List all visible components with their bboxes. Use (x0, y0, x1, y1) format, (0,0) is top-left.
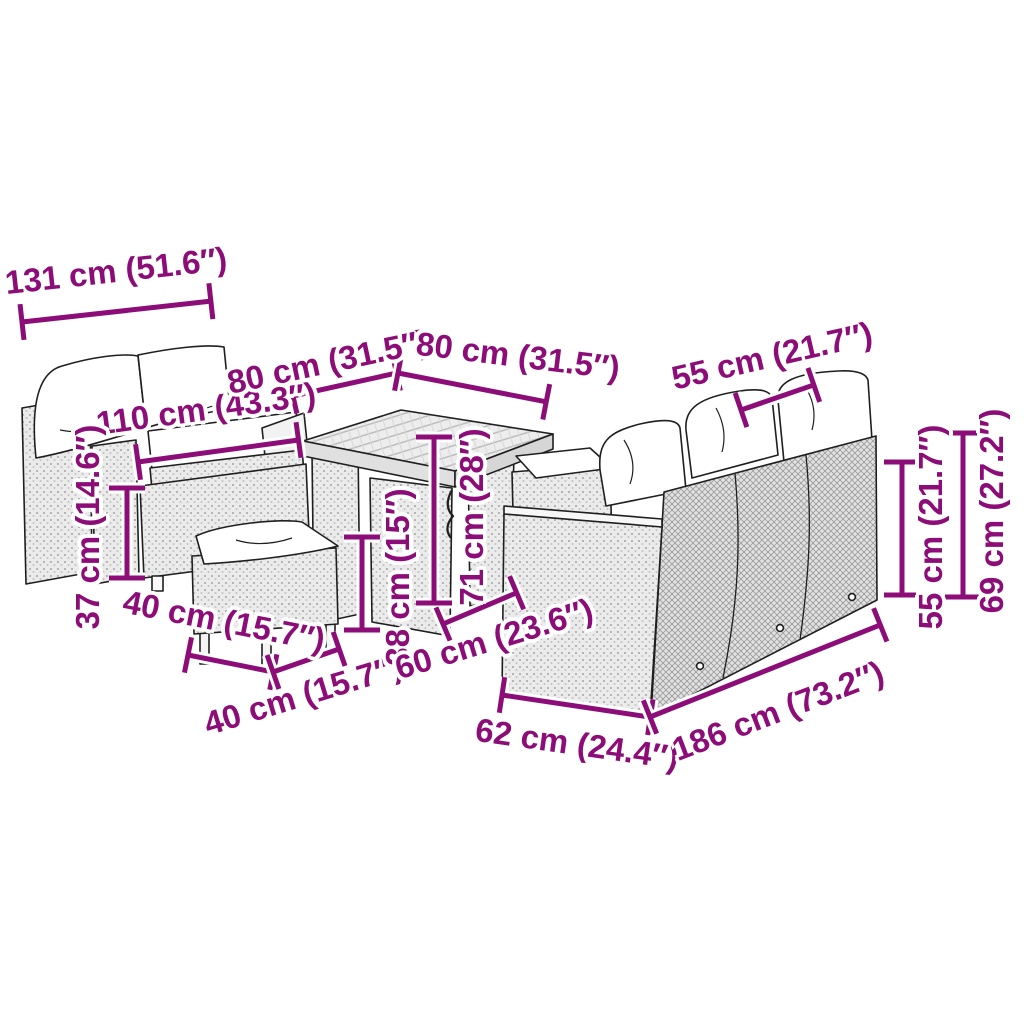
dim-label-bench-seat-height: 37 cm (14.6″) (69, 425, 107, 630)
sofa-foot (777, 625, 784, 632)
sofa-foot (697, 663, 704, 670)
sofa-foot (849, 594, 856, 601)
dim-label-sofa-total-height: 69 cm (27.2″) (973, 409, 1011, 614)
dim-label-sofa-back-height: 55 cm (21.7″) (912, 425, 950, 630)
dim-label-stool-height: 38 cm (15″) (379, 488, 417, 665)
dim-label-table-height: 71 cm (28″) (453, 428, 491, 605)
dimension-diagram: 131 cm (51.6″) 110 cm (43.3″) 80 cm (31.… (0, 0, 1024, 1024)
sofa-3-seater (502, 371, 877, 717)
diagram-canvas (0, 0, 1024, 1024)
